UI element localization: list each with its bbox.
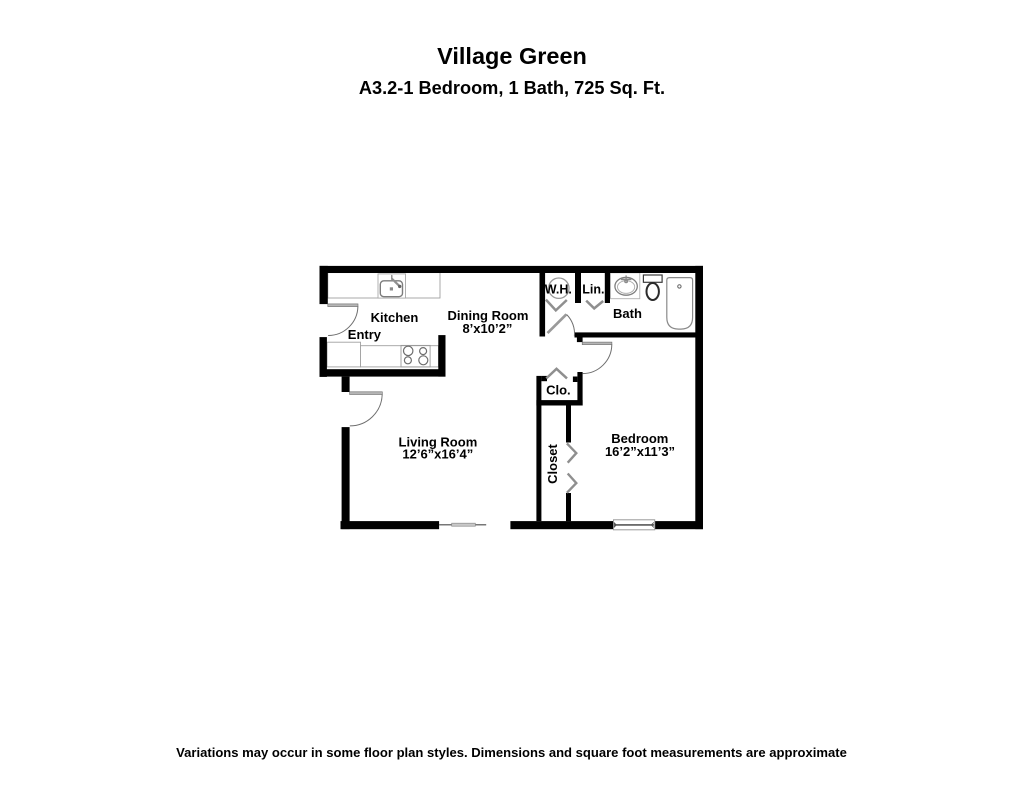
svg-text:Kitchen: Kitchen [371, 310, 419, 325]
svg-text:Closet: Closet [545, 443, 560, 483]
svg-text:Bath: Bath [613, 306, 642, 321]
svg-text:W.H.: W.H. [545, 283, 572, 297]
svg-text:Clo.: Clo. [546, 383, 571, 398]
svg-text:Lin.: Lin. [582, 283, 604, 297]
svg-text:16’2”x11’3”: 16’2”x11’3” [605, 444, 675, 459]
svg-text:Variations may occur in some f: Variations may occur in some floor plan … [176, 745, 847, 760]
svg-text:12’6”x16’4”: 12’6”x16’4” [402, 446, 473, 461]
svg-text:8’x10’2”: 8’x10’2” [462, 321, 512, 336]
svg-text:A3.2-1 Bedroom, 1 Bath, 725 Sq: A3.2-1 Bedroom, 1 Bath, 725 Sq. Ft. [359, 78, 665, 98]
svg-text:Village Green: Village Green [437, 43, 587, 69]
svg-text:Entry: Entry [348, 327, 382, 342]
